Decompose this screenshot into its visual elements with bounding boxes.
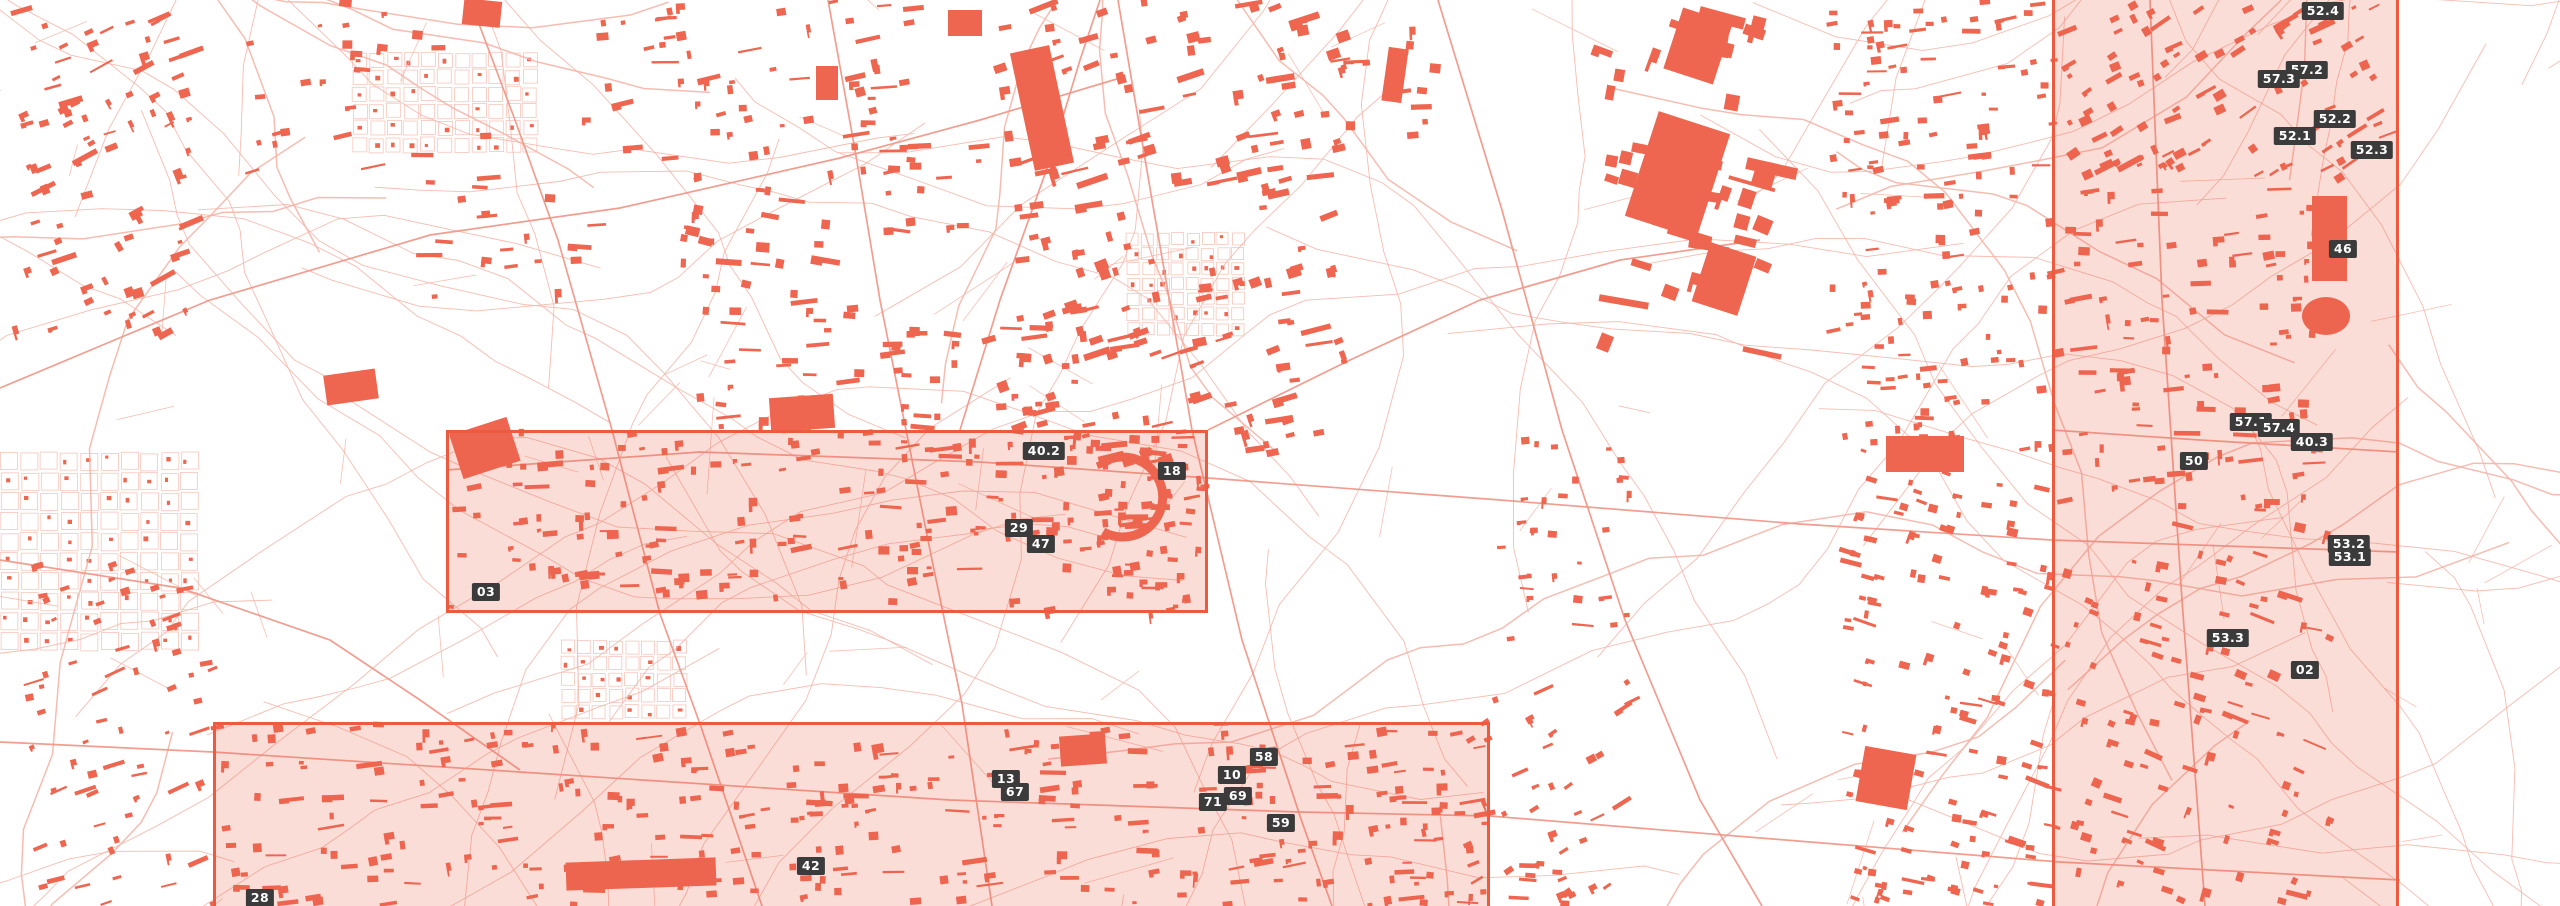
map-label-71: 71 (1199, 793, 1227, 811)
map-labels-layer: 52.457.257.352.252.152.34657.157.440.350… (0, 0, 2560, 906)
map-label-52.4: 52.4 (2302, 2, 2344, 20)
map-label-42: 42 (797, 857, 825, 875)
map-label-46: 46 (2329, 240, 2357, 258)
map-label-03: 03 (472, 583, 500, 601)
map-label-67: 67 (1001, 783, 1029, 801)
map-label-50: 50 (2180, 452, 2208, 470)
map-label-02: 02 (2291, 661, 2319, 679)
city-map-canvas: 52.457.257.352.252.152.34657.157.440.350… (0, 0, 2560, 906)
map-label-18: 18 (1158, 462, 1186, 480)
map-label-69: 69 (1224, 787, 1252, 805)
map-label-40.3: 40.3 (2291, 433, 2333, 451)
map-label-40.2: 40.2 (1023, 442, 1065, 460)
map-label-28: 28 (246, 889, 274, 906)
map-label-52.2: 52.2 (2314, 110, 2356, 128)
map-label-57.3: 57.3 (2258, 70, 2300, 88)
map-label-52.1: 52.1 (2274, 127, 2316, 145)
map-label-58: 58 (1250, 748, 1278, 766)
map-label-59: 59 (1267, 814, 1295, 832)
map-label-53.3: 53.3 (2207, 629, 2249, 647)
map-label-53.1: 53.1 (2329, 548, 2371, 566)
map-label-10: 10 (1218, 766, 1246, 784)
map-label-52.3: 52.3 (2351, 141, 2393, 159)
map-label-47: 47 (1027, 535, 1055, 553)
